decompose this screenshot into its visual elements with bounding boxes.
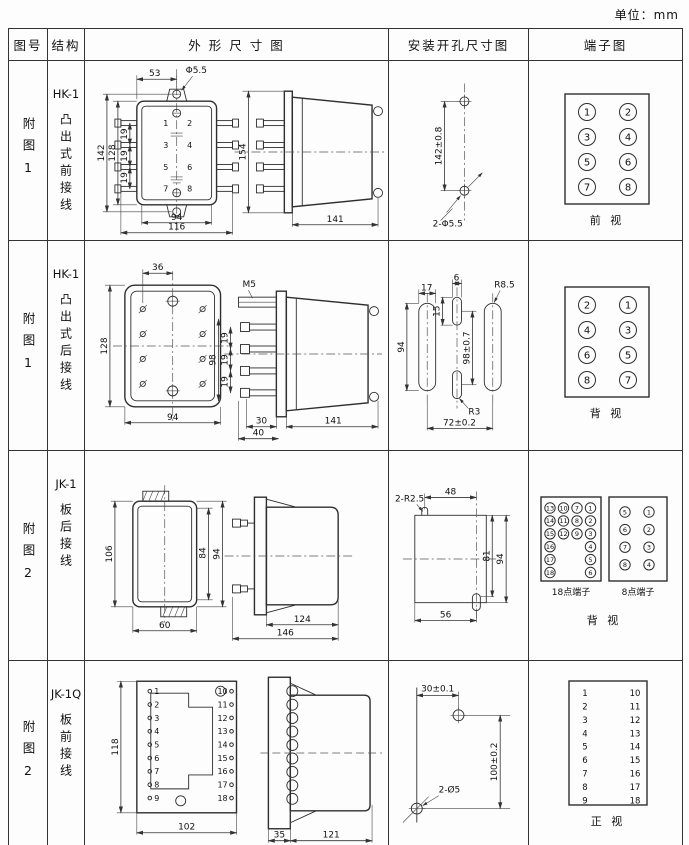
svg-text:17: 17	[546, 555, 554, 563]
svg-text:7: 7	[584, 182, 590, 193]
view-caption: 背 视	[587, 613, 622, 627]
dim-100tol: 100±0.2	[490, 743, 500, 782]
svg-text:9: 9	[154, 794, 159, 803]
row4-structure: JK-1Q 板前接线	[48, 661, 85, 845]
outline-drawing-jk1q: 123456789 101112131415161718 118 102	[85, 661, 388, 845]
dim-142tol: 142±0.8	[435, 126, 445, 165]
dim-98: 98	[209, 353, 219, 365]
svg-text:2: 2	[647, 525, 651, 533]
header-structure: 结构	[48, 29, 85, 61]
svg-text:3: 3	[584, 132, 590, 143]
dim-94: 94	[496, 552, 506, 564]
svg-text:3: 3	[582, 716, 587, 726]
dim-141: 141	[327, 214, 344, 224]
row2-mounting: 17 6 15 94 98±0.7 R8.5 R3 72±0.2	[389, 241, 529, 451]
svg-text:18: 18	[546, 568, 554, 576]
model-label: JK-1	[55, 477, 76, 491]
dim-84: 84	[199, 547, 209, 559]
fig-label: 附图2	[19, 522, 38, 589]
svg-text:8: 8	[625, 182, 631, 193]
svg-text:3: 3	[588, 530, 592, 538]
header-fig: 图号	[9, 29, 48, 61]
svg-text:1: 1	[582, 689, 587, 699]
svg-text:16: 16	[217, 767, 227, 776]
header-outline: 外 形 尺 寸 图	[85, 29, 389, 61]
svg-text:7: 7	[575, 504, 579, 512]
dim-hole: Φ5.5	[186, 66, 207, 76]
dim-30tol: 30±0.1	[421, 684, 454, 694]
svg-text:8: 8	[154, 781, 159, 790]
structure-label: 凸出式前接线	[58, 113, 75, 215]
svg-text:13: 13	[630, 729, 641, 739]
svg-text:4: 4	[588, 543, 592, 551]
svg-text:9: 9	[575, 530, 579, 538]
fig-label: 附图2	[19, 720, 38, 787]
svg-text:12: 12	[217, 714, 227, 723]
svg-text:5: 5	[154, 740, 159, 749]
dim-19a: 19	[221, 332, 231, 344]
page: { "unit_label": "单位：mm", "header": { "fi…	[0, 0, 689, 844]
svg-text:16: 16	[546, 543, 554, 551]
left-terminal-labels: 123456789	[148, 687, 159, 803]
dim-102: 102	[178, 823, 195, 833]
svg-text:4: 4	[582, 729, 587, 739]
spec-table: 图号 结构 外 形 尺 寸 图 安装开孔尺寸图 端子图 附图1 HK-1 凸出式…	[8, 28, 683, 845]
svg-text:2: 2	[154, 700, 159, 709]
side-view: M5 98 19 19	[209, 280, 382, 440]
dim-19b: 19	[120, 149, 130, 161]
row4-outline: 123456789 101112131415161718 118 102	[85, 661, 389, 845]
front-view: 13572468 53 Φ5.5 142 128 19 19 19	[97, 66, 239, 234]
dim-19a: 19	[120, 128, 130, 140]
terminal-diagram-jk1: 131415161718101112789123456 56781234 18点…	[529, 451, 682, 661]
dim-98tol: 98±0.7	[462, 331, 472, 364]
dim-56: 56	[440, 610, 452, 620]
row2-outline: 36 128 94 M5	[85, 241, 389, 451]
radius-big-label: R8.5	[494, 280, 514, 290]
dim-60: 60	[159, 620, 171, 630]
svg-text:1: 1	[163, 118, 168, 127]
row2-terminal: 24681357 背 视	[529, 241, 682, 451]
radius-small-label: R3	[468, 407, 480, 417]
svg-text:5: 5	[588, 555, 592, 563]
model-label: HK-1	[53, 267, 79, 281]
svg-text:2: 2	[582, 702, 587, 712]
row1-fig: 附图1	[9, 61, 48, 241]
mounting-drawing-hk1-rear: 17 6 15 94 98±0.7 R8.5 R3 72±0.2	[389, 241, 528, 451]
svg-text:5: 5	[582, 743, 587, 753]
side-view: 35 121	[260, 677, 382, 842]
dim-121: 121	[323, 831, 340, 841]
svg-text:18: 18	[217, 794, 227, 803]
row3-fig: 附图2	[9, 451, 48, 661]
svg-text:13: 13	[546, 504, 554, 512]
svg-text:2: 2	[584, 300, 590, 311]
model-label: HK-1	[53, 87, 79, 101]
svg-text:1: 1	[625, 300, 631, 311]
outline-drawing-hk1-rear: 36 128 94 M5	[85, 241, 388, 451]
svg-text:12: 12	[630, 716, 641, 726]
svg-text:14: 14	[217, 740, 227, 749]
view-caption: 正 视	[591, 814, 626, 828]
hole-label: 2-Ø5	[439, 785, 461, 796]
side-view: 124 146	[225, 497, 353, 641]
svg-text:11: 11	[559, 517, 567, 525]
mounting-drawing-jk1q: 30±0.1 100±0.2 2-Ø5	[389, 661, 528, 845]
fig-label: 附图1	[19, 117, 38, 184]
svg-text:10: 10	[559, 504, 567, 512]
svg-text:15: 15	[546, 530, 554, 538]
dim-81: 81	[482, 550, 492, 561]
svg-text:16: 16	[630, 769, 641, 779]
fig-label: 附图1	[19, 312, 38, 379]
svg-text:6: 6	[154, 754, 159, 763]
dim-94: 94	[397, 340, 407, 352]
dim-94: 94	[167, 412, 179, 422]
stud-label: M5	[242, 280, 255, 290]
mounting-drawing-hk1-front: 142±0.8 2-Φ5.5	[389, 61, 528, 241]
row1-structure: HK-1 凸出式前接线	[48, 61, 85, 241]
dim-6: 6	[454, 273, 460, 283]
dim-146: 146	[277, 628, 294, 638]
svg-text:3: 3	[163, 140, 168, 149]
svg-text:3: 3	[154, 714, 159, 723]
dim-15: 15	[433, 305, 443, 316]
terminal-diagram-rear-view: 24681357 背 视	[529, 241, 682, 451]
svg-text:4: 4	[584, 325, 590, 336]
svg-text:8: 8	[187, 184, 192, 193]
svg-text:8: 8	[584, 375, 590, 386]
svg-text:18: 18	[630, 796, 641, 806]
row4-terminal: 123456789101112131415161718 正 视	[529, 661, 682, 845]
svg-text:13: 13	[217, 727, 227, 736]
mount-hole-label: 2-Φ5.5	[433, 219, 463, 229]
dim-118: 118	[111, 738, 121, 755]
outline-drawing-jk1: 106 84 94 60	[85, 451, 388, 661]
dim-53: 53	[149, 69, 160, 79]
svg-text:1: 1	[588, 504, 592, 512]
svg-text:6: 6	[187, 162, 192, 171]
structure-label: 凸出式后接线	[58, 293, 75, 395]
notch-label: 2-R2.5	[395, 494, 424, 504]
dim-94: 94	[171, 212, 183, 222]
terminal-bumps	[287, 686, 298, 805]
svg-text:2: 2	[187, 118, 192, 127]
svg-text:3: 3	[647, 543, 651, 551]
svg-text:4: 4	[187, 140, 192, 149]
terminal-diagram-front-view: 13572468 前 视	[529, 61, 682, 241]
svg-text:14: 14	[630, 743, 641, 753]
svg-text:9: 9	[582, 796, 587, 806]
svg-text:10: 10	[217, 687, 227, 696]
terminal-circles: 24681357	[579, 296, 637, 388]
front-view: 106 84 94 60	[105, 485, 227, 633]
svg-text:6: 6	[584, 350, 590, 361]
svg-text:3: 3	[625, 325, 631, 336]
row2-structure: HK-1 凸出式后接线	[48, 241, 85, 451]
svg-text:1: 1	[584, 107, 590, 118]
rear-view: 36 128 94	[100, 263, 233, 424]
mounting-drawing-jk1: 2-R2.5 48 81 94 56	[389, 451, 528, 661]
svg-text:2: 2	[625, 107, 631, 118]
row3-mounting: 2-R2.5 48 81 94 56	[389, 451, 529, 661]
svg-text:7: 7	[163, 184, 168, 193]
dim-19b: 19	[221, 353, 231, 365]
svg-text:11: 11	[630, 702, 641, 712]
header-mounting: 安装开孔尺寸图	[389, 29, 529, 61]
dim-142: 142	[97, 144, 107, 161]
svg-text:17: 17	[217, 781, 227, 790]
svg-text:7: 7	[623, 543, 627, 551]
right-terminal-labels: 101112131415161718	[217, 687, 233, 803]
dim-35: 35	[274, 831, 285, 841]
header-terminal: 端子图	[529, 29, 682, 61]
svg-text:8: 8	[575, 517, 579, 525]
svg-text:8: 8	[582, 783, 587, 793]
dim-72tol: 72±0.2	[443, 418, 476, 428]
dim-94: 94	[213, 548, 223, 560]
svg-text:5: 5	[625, 350, 631, 361]
svg-text:15: 15	[630, 756, 641, 766]
svg-text:12: 12	[559, 530, 567, 538]
svg-text:7: 7	[582, 769, 587, 779]
structure-label: 板前接线	[58, 713, 75, 781]
outline-drawing-hk1-front: 13572468 53 Φ5.5 142 128 19 19 19	[85, 61, 388, 241]
svg-text:6: 6	[625, 157, 631, 168]
side-view: 154 141	[235, 91, 385, 227]
svg-text:5: 5	[163, 162, 168, 171]
svg-text:14: 14	[546, 517, 554, 525]
svg-text:1: 1	[154, 687, 159, 696]
row1-mounting: 142±0.8 2-Φ5.5	[389, 61, 529, 241]
row3-terminal: 131415161718101112789123456 56781234 18点…	[529, 451, 682, 661]
front-view: 123456789 101112131415161718 118 102	[111, 681, 237, 834]
row4-mounting: 30±0.1 100±0.2 2-Ø5	[389, 661, 529, 845]
svg-text:7: 7	[625, 375, 631, 386]
dim-30: 30	[256, 416, 268, 426]
svg-text:2: 2	[588, 517, 592, 525]
svg-text:4: 4	[647, 561, 651, 569]
structure-label: 板后接线	[58, 503, 75, 571]
terminal-diagram-jk1q: 123456789101112131415161718 正 视	[529, 661, 682, 845]
view-caption: 背 视	[590, 406, 625, 420]
row1-outline: 13572468 53 Φ5.5 142 128 19 19 19	[85, 61, 389, 241]
view-caption: 前 视	[590, 213, 625, 227]
dim-19c: 19	[120, 171, 130, 183]
svg-text:17: 17	[630, 783, 641, 793]
row2-fig: 附图1	[9, 241, 48, 451]
terminal-circles: 13572468	[579, 103, 637, 195]
row3-outline: 106 84 94 60	[85, 451, 389, 661]
svg-text:8: 8	[623, 561, 627, 569]
dim-106: 106	[105, 545, 115, 562]
svg-text:15: 15	[217, 754, 227, 763]
dim-48: 48	[445, 487, 457, 497]
svg-text:1: 1	[647, 508, 651, 516]
dim-124: 124	[294, 614, 311, 624]
model-label: JK-1Q	[51, 687, 81, 701]
svg-text:6: 6	[582, 756, 587, 766]
terminal18-caption: 18点端子	[552, 586, 590, 598]
unit-label: 单位：mm	[615, 6, 679, 23]
dim-128: 128	[100, 337, 110, 354]
side-studs	[256, 119, 284, 193]
terminal8-circles: 56781234	[620, 506, 654, 569]
svg-text:4: 4	[154, 727, 159, 736]
terminal-numbers: 13572468	[163, 118, 192, 193]
row3-structure: JK-1 板后接线	[48, 451, 85, 661]
dim-36: 36	[152, 263, 164, 273]
terminal-numbers: 123456789101112131415161718	[582, 689, 640, 806]
svg-text:6: 6	[588, 568, 592, 576]
rear-studs	[240, 322, 276, 397]
svg-text:5: 5	[623, 508, 627, 516]
svg-text:5: 5	[584, 157, 590, 168]
terminal18-circles: 131415161718101112789123456	[545, 502, 596, 577]
dim-141: 141	[325, 416, 342, 426]
dim-128: 128	[108, 144, 118, 161]
terminal8-caption: 8点端子	[622, 586, 655, 598]
dim-19c: 19	[221, 375, 231, 387]
svg-text:7: 7	[154, 767, 159, 776]
svg-text:11: 11	[217, 700, 227, 709]
row1-terminal: 13572468 前 视	[529, 61, 682, 241]
svg-text:10: 10	[630, 689, 641, 699]
dim-40: 40	[253, 428, 265, 438]
dim-116: 116	[168, 222, 185, 232]
svg-text:6: 6	[623, 525, 627, 533]
svg-text:4: 4	[625, 132, 631, 143]
row4-fig: 附图2	[9, 661, 48, 845]
dim-17: 17	[421, 283, 432, 293]
